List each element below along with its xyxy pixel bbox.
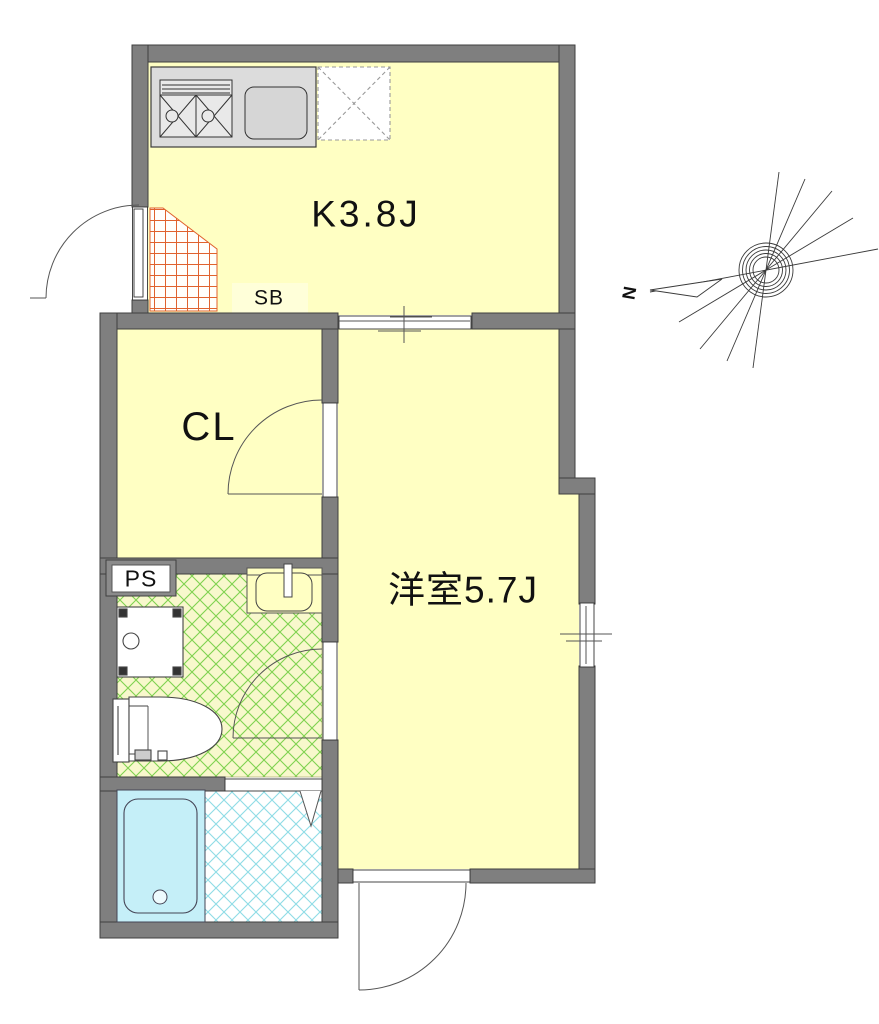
floor-plan-drawing bbox=[0, 0, 879, 1024]
kitchen-label: K3.8J bbox=[311, 196, 421, 233]
wall-right-lower-a bbox=[579, 494, 595, 604]
bathtub-icon bbox=[117, 790, 205, 922]
wall-bathroom-bottom bbox=[100, 922, 338, 938]
gas-stove-icon bbox=[160, 80, 232, 137]
wall-room-bottom-left bbox=[338, 869, 353, 883]
bathroom-door-opening bbox=[225, 779, 322, 791]
floor-plan-page: K3.8J SB CL PS 洋室5.7J N bbox=[0, 0, 879, 1024]
wall-mid-horizontal-left bbox=[100, 313, 338, 329]
wall-right-step bbox=[559, 478, 595, 494]
wall-right-upper bbox=[559, 45, 575, 494]
sliding-window-icon bbox=[339, 316, 471, 329]
washing-machine-pan-icon bbox=[117, 607, 183, 677]
western-room-label: 洋室5.7J bbox=[388, 572, 538, 609]
kitchen-fixtures bbox=[151, 67, 390, 147]
wash-basin-icon bbox=[247, 564, 322, 613]
main-entry-opening bbox=[353, 870, 470, 882]
pipe-space-label: PS bbox=[125, 568, 158, 591]
wall-divider-c bbox=[322, 740, 338, 938]
main-entry-door-icon bbox=[359, 883, 466, 990]
wall-room-bottom-right bbox=[470, 869, 595, 883]
wall-mid-horizontal-right bbox=[472, 313, 575, 329]
refrigerator-space-icon bbox=[318, 67, 390, 140]
entrance-door-icon bbox=[30, 205, 143, 298]
closet-door-opening bbox=[323, 403, 337, 497]
wall-top bbox=[132, 45, 575, 62]
wall-kitchen-left-upper bbox=[132, 45, 148, 207]
kitchen-sink-icon bbox=[245, 87, 307, 139]
closet-label: CL bbox=[181, 407, 236, 447]
compass-line bbox=[753, 172, 779, 368]
north-arrow-icon bbox=[650, 279, 722, 297]
wall-washroom-bathroom bbox=[100, 777, 225, 791]
compass-icon bbox=[650, 172, 878, 368]
wall-divider-a bbox=[322, 329, 338, 403]
wall-left-lower bbox=[100, 313, 117, 938]
washroom-door-opening bbox=[323, 642, 337, 740]
shoe-box-label: SB bbox=[254, 288, 284, 309]
side-window-icon bbox=[580, 603, 594, 667]
wall-right-lower-b bbox=[579, 666, 595, 883]
